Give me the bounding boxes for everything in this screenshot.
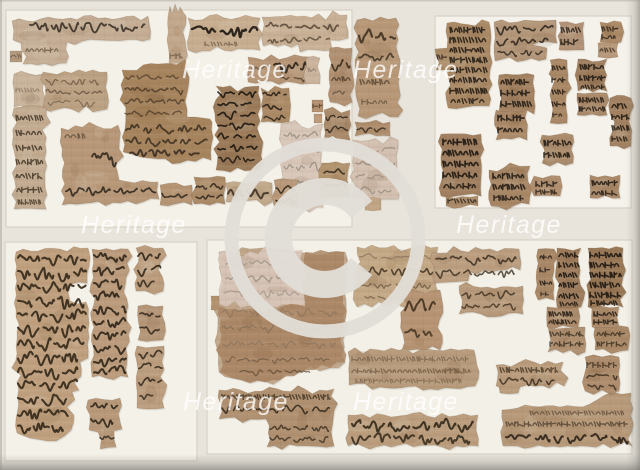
svg-text:Heritage: Heritage	[81, 212, 187, 239]
svg-text:Heritage: Heritage	[456, 212, 562, 239]
svg-text:Heritage: Heritage	[353, 389, 459, 416]
svg-text:Heritage: Heritage	[182, 57, 288, 84]
svg-text:Heritage: Heritage	[183, 389, 289, 416]
svg-text:Heritage: Heritage	[353, 57, 459, 84]
